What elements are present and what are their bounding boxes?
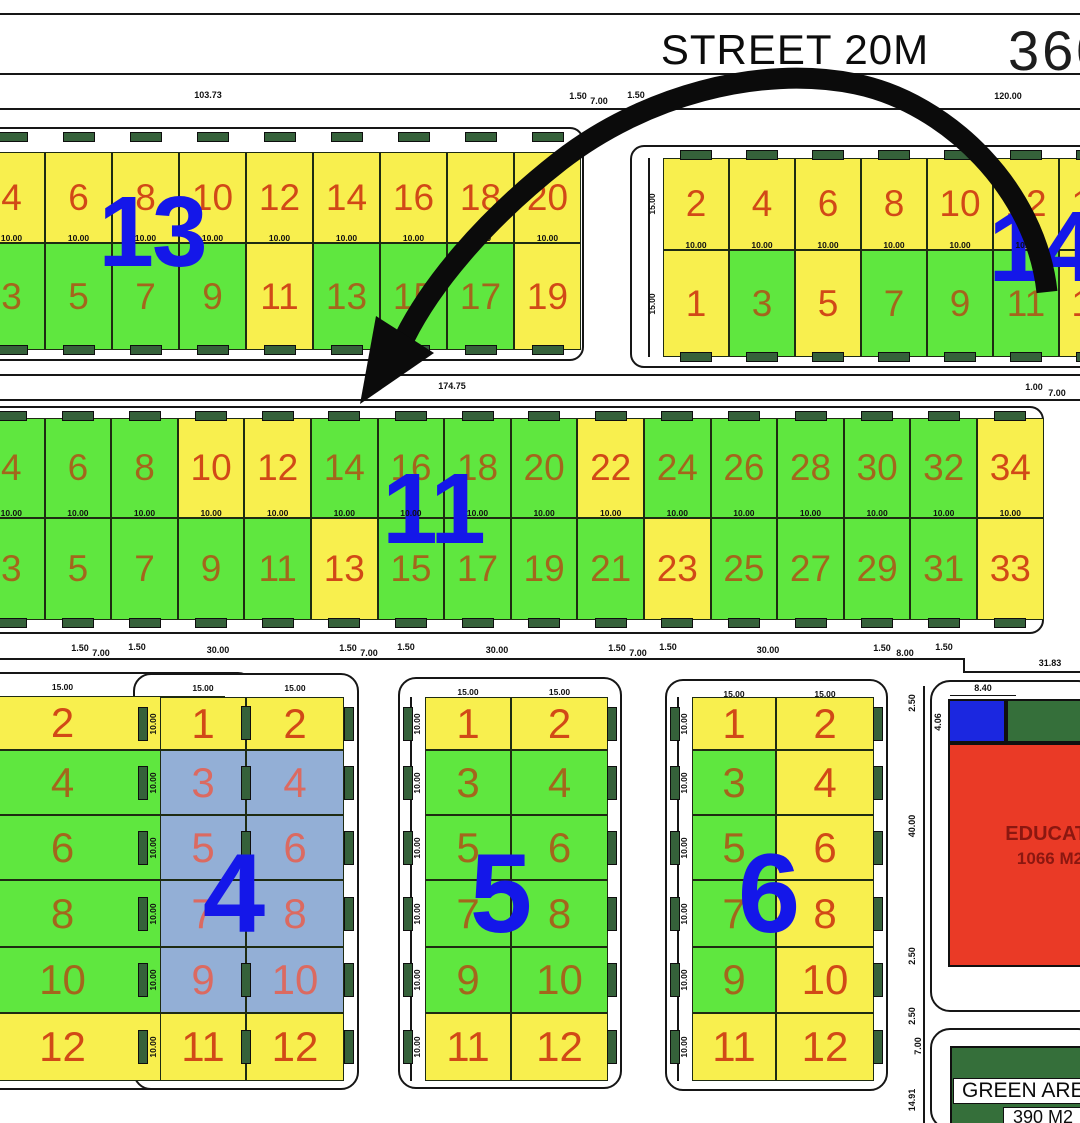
entrance-marker (241, 706, 251, 740)
plot-cell: 16 (380, 152, 447, 243)
dimension-label: 15.00 (535, 686, 585, 698)
plot-number: 27 (790, 548, 831, 590)
dimension-label: 10.00 (678, 768, 690, 798)
entrance-marker (795, 618, 827, 628)
plot-number: 2 (548, 700, 571, 748)
dimension-label: 10.00 (528, 232, 568, 244)
dimension-label: 10.00 (191, 507, 231, 519)
plot-cell: 8 (111, 418, 178, 518)
boundary-line (0, 399, 1080, 401)
dimension-label: 10.00 (874, 239, 914, 251)
plot-cell: 10 (776, 947, 874, 1013)
plot-number: 4 (752, 183, 773, 225)
entrance-marker (812, 150, 844, 160)
dimension-label: 10.00 (394, 232, 434, 244)
entrance-marker (595, 618, 627, 628)
plot-cell: 17 (447, 243, 514, 350)
plot-number: 6 (818, 183, 839, 225)
dimension-label: 10.00 (327, 232, 367, 244)
plot-cell: 2 (246, 697, 344, 750)
dimension-label: 10.00 (678, 709, 690, 739)
plot-cell: 10 (511, 947, 608, 1013)
dimension-label: 10.00 (657, 507, 697, 519)
plot-cell: 11 (425, 1013, 511, 1081)
dimension-label: 15.00 (270, 682, 320, 694)
plot-cell: 9 (692, 947, 776, 1013)
entrance-marker (607, 707, 617, 741)
entrance-marker (328, 411, 360, 421)
entrance-marker (528, 411, 560, 421)
entrance-marker (241, 963, 251, 997)
plot-number: 11 (712, 1023, 756, 1071)
dimension-label: 10.00 (147, 768, 159, 798)
education-area-label: EDUCATION (989, 823, 1080, 846)
dimension-label: 10.00 (0, 507, 31, 519)
site-plan-canvas: STREET 20M 360 8.40 4.06 EDUCATION 1066 … (0, 0, 1080, 1123)
plot-number: 9 (191, 956, 214, 1004)
dimension-label: 10.00 (58, 507, 98, 519)
dimension-label: 31.83 (1020, 657, 1080, 669)
plot-number: 31 (923, 548, 964, 590)
entrance-marker (395, 411, 427, 421)
dimension-label: 103.73 (178, 89, 238, 101)
plot-cell: 19 (514, 243, 581, 350)
entrance-marker (129, 411, 161, 421)
dimension-label: 30.00 (188, 644, 248, 656)
dimension-label: 10.00 (147, 965, 159, 995)
plot-cell: 28 (777, 418, 844, 518)
dimension-label: 1.50 (914, 641, 974, 653)
dimension-label: 15.00 (38, 681, 88, 693)
plot-number: 10 (802, 956, 849, 1004)
dimension-label: 30.00 (738, 644, 798, 656)
education-green-parcel (1006, 699, 1080, 743)
dimension-label: 1.50 (376, 641, 436, 653)
entrance-marker (62, 411, 94, 421)
dimension-label: 10.00 (808, 239, 848, 251)
plot-cell: 4 (0, 418, 45, 518)
entrance-marker (0, 345, 28, 355)
entrance-marker (607, 766, 617, 800)
education-area-size: 1066 M2 (985, 849, 1080, 869)
plot-number: 3 (456, 759, 479, 807)
dimension-label: 14.91 (906, 1070, 918, 1123)
plot-number: 34 (990, 447, 1031, 489)
plot-number: 4 (51, 759, 74, 807)
dimension-label: 10.00 (461, 232, 501, 244)
plot-number: 16 (393, 177, 434, 219)
plot-number: 10 (191, 447, 232, 489)
entrance-marker (746, 150, 778, 160)
plot-cell: 10 (178, 418, 245, 518)
dimension-label: 2.50 (906, 926, 918, 986)
dimension-label: 10.00 (411, 768, 423, 798)
dimension-label: 10.00 (0, 232, 32, 244)
entrance-marker (195, 618, 227, 628)
plot-number: 2 (686, 183, 707, 225)
plot-cell: 25 (711, 518, 778, 620)
dimension-label: 7.00 (1027, 387, 1080, 399)
entrance-marker (0, 132, 28, 142)
plot-number: 22 (590, 447, 631, 489)
entrance-marker (795, 411, 827, 421)
plot-number: 11 (446, 1023, 490, 1071)
plot-number: 9 (722, 956, 745, 1004)
plot-number: 17 (460, 276, 501, 318)
plot-number: 13 (326, 276, 367, 318)
plot-number: 25 (723, 548, 764, 590)
plot-number: 10 (272, 956, 319, 1004)
plot-number: 3 (191, 759, 214, 807)
plot-cell: 4 (246, 750, 344, 815)
dimension-label: 10.00 (524, 507, 564, 519)
education-blue-parcel (948, 699, 1006, 743)
dimension-label: 10.00 (411, 1032, 423, 1062)
plot-cell: 2 (663, 158, 729, 250)
entrance-marker (607, 1030, 617, 1064)
entrance-marker (1010, 352, 1042, 362)
plot-number: 14 (326, 177, 367, 219)
block-number: 6 (608, 838, 928, 950)
plot-cell: 10 (246, 947, 344, 1013)
education-area: EDUCATION 1066 M2 (948, 743, 1080, 967)
entrance-marker (994, 618, 1026, 628)
plot-number: 12 (39, 1023, 86, 1071)
plot-number: 19 (527, 276, 568, 318)
plot-number: 12 (802, 1023, 849, 1071)
plot-number: 32 (923, 447, 964, 489)
plot-cell: 1 (663, 250, 729, 357)
plot-cell: 12 (246, 1013, 344, 1081)
plot-cell: 26 (711, 418, 778, 518)
entrance-marker (861, 618, 893, 628)
plot-cell: 20 (514, 152, 581, 243)
dimension-label: 15.00 (646, 187, 658, 221)
plot-cell: 14 (313, 152, 380, 243)
plot-cell: 3 (425, 750, 511, 815)
plot-cell: 4 (776, 750, 874, 815)
entrance-marker (62, 618, 94, 628)
plot-number: 23 (657, 548, 698, 590)
entrance-marker (395, 618, 427, 628)
plot-number: 8 (51, 890, 74, 938)
entrance-marker (344, 963, 354, 997)
boundary-line (0, 108, 1080, 110)
dimension-label: 10.00 (147, 833, 159, 863)
plot-number: 2 (283, 700, 306, 748)
plot-number: 20 (527, 177, 568, 219)
dimension-label: 10.00 (411, 833, 423, 863)
dimension-label: 10.00 (678, 965, 690, 995)
entrance-marker (129, 618, 161, 628)
plot-number: 6 (68, 447, 89, 489)
plot-number: 28 (790, 447, 831, 489)
plot-cell: 23 (644, 518, 711, 620)
entrance-marker (130, 132, 162, 142)
plot-cell: 9 (178, 518, 245, 620)
plot-cell: 27 (777, 518, 844, 620)
plot-number: 4 (1, 447, 22, 489)
entrance-marker (928, 411, 960, 421)
dimension-label: 10.00 (458, 507, 498, 519)
dimension-label: 10.00 (126, 232, 166, 244)
entrance-marker (680, 352, 712, 362)
dimension-label: 10.00 (1072, 239, 1080, 251)
entrance-marker (241, 1030, 251, 1064)
entrance-marker (331, 345, 363, 355)
plot-number: 15 (393, 276, 434, 318)
dimension-label: 10.00 (411, 899, 423, 929)
entrance-marker (1010, 150, 1042, 160)
dimension-label: 7.00 (912, 1016, 924, 1076)
boundary-line (0, 658, 965, 660)
plot-cell: 11 (692, 1013, 776, 1081)
dimension-label: 10.00 (147, 709, 159, 739)
plot-number: 33 (990, 548, 1031, 590)
plot-number: 1 (722, 700, 745, 748)
plot-number: 12 (272, 1023, 319, 1071)
plot-cell: 2 (776, 697, 874, 750)
dimension-label: 15.00 (646, 287, 658, 321)
plot-number: 3 (1, 548, 22, 590)
entrance-marker (264, 132, 296, 142)
plot-number: 29 (857, 548, 898, 590)
plot-cell: 1 (692, 697, 776, 750)
education-height-dimension: 4.06 (932, 694, 944, 750)
dimension-label: 30.00 (467, 644, 527, 656)
plot-number: 2 (813, 700, 836, 748)
plot-cell: 3 (729, 250, 795, 357)
dimension-label: 10.00 (591, 507, 631, 519)
entrance-marker (1076, 150, 1080, 160)
entrance-marker (873, 766, 883, 800)
plot-number: 1 (686, 283, 707, 325)
plot-cell: 4 (729, 158, 795, 250)
plot-cell: 34 (977, 418, 1044, 518)
dimension-label: 10.00 (391, 507, 431, 519)
dimension-label: 10.00 (411, 709, 423, 739)
dimension-label: 10.00 (924, 507, 964, 519)
dimension-label: 10.00 (258, 507, 298, 519)
boundary-line (963, 671, 1080, 673)
dimension-label: 10.00 (990, 507, 1030, 519)
dimension-label: 15.00 (443, 686, 493, 698)
education-width-dimension: 8.40 (950, 682, 1016, 696)
dimension-label: 40.00 (906, 796, 918, 856)
plot-number: 1 (456, 700, 479, 748)
entrance-marker (607, 963, 617, 997)
dimension-label: 10.00 (742, 239, 782, 251)
plot-cell: 3 (0, 518, 45, 620)
boundary-line (963, 658, 965, 672)
plot-cell: 15 (380, 243, 447, 350)
entrance-marker (195, 411, 227, 421)
plot-number: 4 (548, 759, 571, 807)
entrance-marker (873, 1030, 883, 1064)
plot-cell: 12 (511, 1013, 608, 1081)
plot-cell: 13 (313, 243, 380, 350)
dimension-label: 10.00 (411, 965, 423, 995)
plot-cell: 2 (511, 697, 608, 750)
plot-number: 24 (657, 447, 698, 489)
plot-number: 6 (51, 824, 74, 872)
entrance-marker (462, 411, 494, 421)
entrance-marker (528, 618, 560, 628)
plot-number: 10 (39, 956, 86, 1004)
dimension-label: 10.00 (678, 1032, 690, 1062)
dimension-label: 10.00 (324, 507, 364, 519)
entrance-marker (595, 411, 627, 421)
plot-cell: 1 (160, 697, 246, 750)
plot-number: 30 (857, 447, 898, 489)
plot-number: 3 (722, 759, 745, 807)
entrance-marker (812, 352, 844, 362)
entrance-marker (873, 707, 883, 741)
plot-number: 4 (813, 759, 836, 807)
dimension-label: 10.00 (678, 833, 690, 863)
plot-cell: 4 (511, 750, 608, 815)
boundary-line (0, 13, 1080, 15)
plot-cell: 6 (45, 418, 112, 518)
dimension-label: 15.00 (800, 688, 850, 700)
dimension-label: 15.00 (178, 682, 228, 694)
plot-number: 12 (536, 1023, 583, 1071)
entrance-marker (344, 707, 354, 741)
plot-number: 18 (460, 177, 501, 219)
dimension-label: 10.00 (791, 507, 831, 519)
plot-cell: 33 (977, 518, 1044, 620)
entrance-marker (728, 618, 760, 628)
entrance-marker (0, 618, 27, 628)
entrance-marker (873, 963, 883, 997)
dimension-label: 10.00 (193, 232, 233, 244)
plot-cell: 6 (795, 158, 861, 250)
dimension-label: 10.00 (724, 507, 764, 519)
entrance-marker (197, 132, 229, 142)
entrance-marker (328, 618, 360, 628)
plot-cell: 9 (160, 947, 246, 1013)
entrance-marker (928, 618, 960, 628)
plot-cell: 32 (910, 418, 977, 518)
entrance-marker (944, 150, 976, 160)
entrance-marker (465, 345, 497, 355)
entrance-marker (262, 411, 294, 421)
dimension-label: 1.50 (107, 641, 167, 653)
entrance-marker (264, 345, 296, 355)
dimension-label: 1.50 (638, 641, 698, 653)
entrance-marker (130, 345, 162, 355)
plot-cell: 31 (910, 518, 977, 620)
dimension-label: 10.00 (1006, 239, 1046, 251)
dimension-label: 120.00 (978, 90, 1038, 102)
entrance-marker (680, 150, 712, 160)
plot-number: 7 (134, 548, 155, 590)
plot-number: 2 (51, 699, 74, 747)
plot-cell: 12 (776, 1013, 874, 1081)
plot-number: 3 (752, 283, 773, 325)
entrance-marker (532, 345, 564, 355)
plot-cell: 3 (692, 750, 776, 815)
street-label: STREET 20M (640, 26, 950, 74)
plot-cell: 7 (111, 518, 178, 620)
plot-cell: 24 (644, 418, 711, 518)
plot-cell: 11 (160, 1013, 246, 1081)
dimension-label: 10.00 (147, 1032, 159, 1062)
entrance-marker (344, 1030, 354, 1064)
entrance-marker (63, 345, 95, 355)
plot-number: 26 (723, 447, 764, 489)
plot-number: 1 (191, 700, 214, 748)
dimension-label: 10.00 (940, 239, 980, 251)
dimension-label: 2.50 (906, 673, 918, 733)
plot-cell: 3 (160, 750, 246, 815)
dimension-label: 10.00 (260, 232, 300, 244)
plot-number: 21 (590, 548, 631, 590)
entrance-marker (878, 352, 910, 362)
entrance-marker (1076, 352, 1080, 362)
entrance-marker (728, 411, 760, 421)
dimension-label: 10.00 (59, 232, 99, 244)
plot-cell: 9 (425, 947, 511, 1013)
entrance-marker (63, 132, 95, 142)
entrance-marker (994, 411, 1026, 421)
dimension-label: 10.00 (125, 507, 165, 519)
dimension-label: 174.75 (422, 380, 482, 392)
entrance-marker (197, 345, 229, 355)
plot-cell: 5 (45, 518, 112, 620)
entrance-marker (944, 352, 976, 362)
plot-cell: 5 (795, 250, 861, 357)
plot-cell: 30 (844, 418, 911, 518)
plot-number: 11 (181, 1023, 225, 1071)
entrance-marker (241, 766, 251, 800)
entrance-marker (532, 132, 564, 142)
entrance-marker (661, 411, 693, 421)
entrance-marker (262, 618, 294, 628)
plot-number: 9 (201, 548, 222, 590)
plot-cell: 18 (447, 152, 514, 243)
plot-number: 8 (134, 447, 155, 489)
entrance-marker (398, 132, 430, 142)
plot-number: 5 (818, 283, 839, 325)
plot-number: 4 (283, 759, 306, 807)
plot-cell: 29 (844, 518, 911, 620)
entrance-marker (344, 766, 354, 800)
entrance-marker (465, 132, 497, 142)
entrance-marker (0, 411, 27, 421)
entrance-marker (398, 345, 430, 355)
entrance-marker (861, 411, 893, 421)
entrance-marker (331, 132, 363, 142)
dimension-label: 10.00 (676, 239, 716, 251)
corner-number: 360 (1008, 18, 1080, 83)
plot-number: 10 (536, 956, 583, 1004)
green-area-label: GREEN AREA (953, 1078, 1080, 1104)
dimension-label: 10.00 (857, 507, 897, 519)
entrance-marker (661, 618, 693, 628)
entrance-marker (746, 352, 778, 362)
dimension-label: 10.00 (678, 899, 690, 929)
dimension-label: 15.00 (709, 688, 759, 700)
plot-cell: 1 (425, 697, 511, 750)
entrance-marker (878, 150, 910, 160)
dimension-label: 1.50 (606, 89, 666, 101)
entrance-marker (462, 618, 494, 628)
plot-number: 9 (456, 956, 479, 1004)
green-area-size: 390 M2 (1003, 1107, 1080, 1123)
boundary-line (0, 374, 1080, 376)
dimension-label: 10.00 (147, 899, 159, 929)
